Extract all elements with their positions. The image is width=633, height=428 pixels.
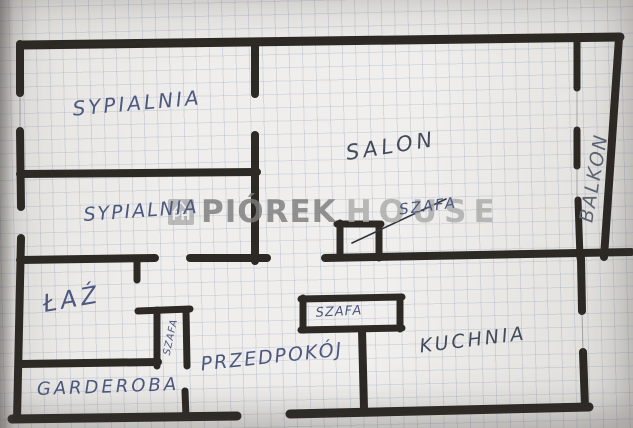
- room-label-kuchnia: KUCHNIA: [418, 323, 527, 358]
- room-labels: SYPIALNIASALONSYPIALNIASZAFABALKONŁAŹSZA…: [0, 0, 633, 428]
- room-label-sypialnia-2: SYPIALNIA: [83, 196, 199, 226]
- room-label-balkon: BALKON: [575, 132, 612, 224]
- room-label-przedpokoj: PRZEDPOKÓJ: [200, 339, 345, 376]
- room-label-sypialnia-1: SYPIALNIA: [72, 85, 203, 120]
- floor-plan-photo: PH PIÓREK HOUSE SYPIALNIASALONSYPIALNIAS…: [0, 0, 633, 428]
- room-label-garderoba: GARDEROBA: [37, 374, 180, 400]
- room-label-szafa-closet: SZAFA: [162, 318, 180, 357]
- room-label-salon: SALON: [344, 127, 438, 165]
- room-label-szafa-salon: SZAFA: [398, 194, 458, 219]
- room-label-szafa-przedpokoj: SZAFA: [315, 303, 362, 320]
- room-label-laz: ŁAŹ: [41, 280, 103, 318]
